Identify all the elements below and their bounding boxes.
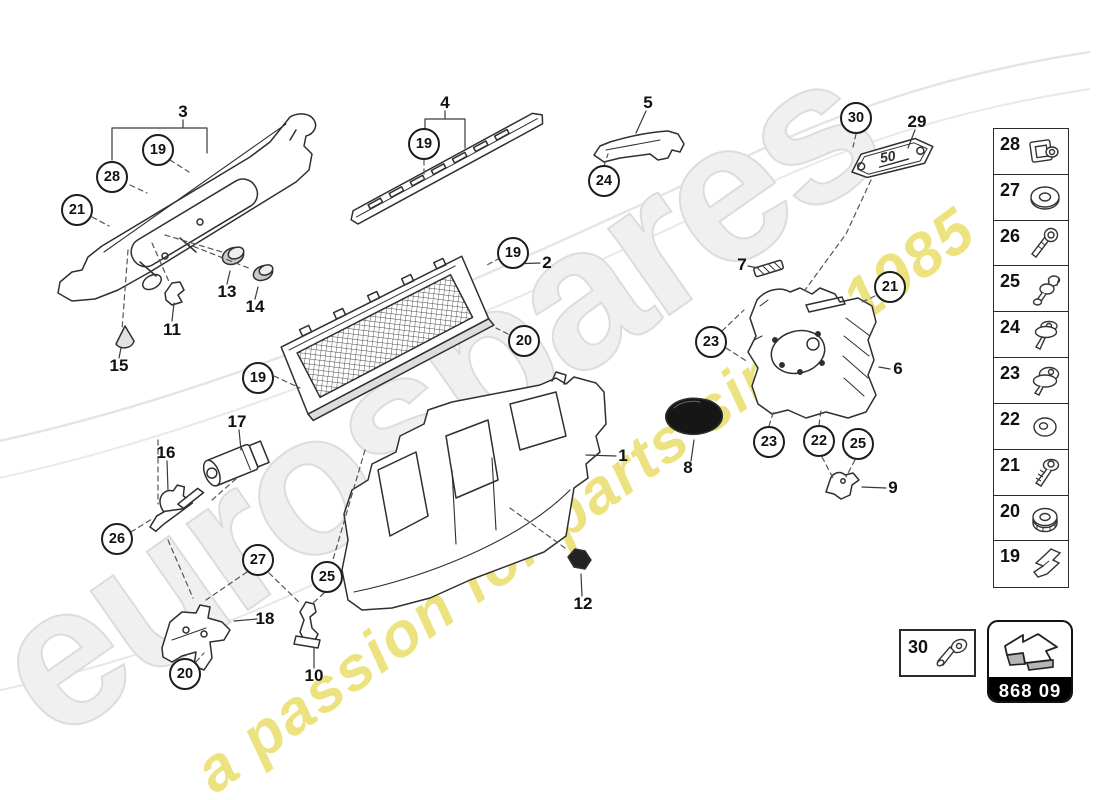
part-8-pad[interactable] [666, 398, 723, 434]
fasteners-legend: 28 27 26 [993, 128, 1069, 588]
label-1[interactable]: 1 [618, 446, 627, 466]
callout-22[interactable]: 22 [803, 425, 835, 457]
part-10-bracket[interactable] [294, 602, 320, 648]
legend-item-25[interactable]: 25 [993, 265, 1069, 313]
label-3[interactable]: 3 [178, 102, 187, 122]
callout-23[interactable]: 23 [695, 326, 727, 358]
push-rivet-icon [1023, 315, 1067, 355]
countersunk-screw-icon [926, 633, 974, 677]
label-18[interactable]: 18 [256, 609, 275, 629]
part-9-bracket[interactable] [826, 473, 859, 499]
legend-item-26[interactable]: 26 [993, 220, 1069, 268]
part-2-grille-panel[interactable] [273, 251, 499, 421]
label-14[interactable]: 14 [246, 297, 265, 317]
callout-21[interactable]: 21 [874, 271, 906, 303]
label-4[interactable]: 4 [440, 93, 449, 113]
callout-19[interactable]: 19 [408, 128, 440, 160]
label-13[interactable]: 13 [218, 282, 237, 302]
callout-24[interactable]: 24 [588, 165, 620, 197]
label-11[interactable]: 11 [163, 320, 181, 340]
label-6[interactable]: 6 [893, 359, 902, 379]
part-11-clip[interactable] [165, 282, 184, 305]
legend-item-28[interactable]: 28 [993, 128, 1069, 176]
callout-21[interactable]: 21 [61, 194, 93, 226]
callout-23[interactable]: 23 [753, 426, 785, 458]
inset-item-30[interactable]: 30 [899, 629, 976, 677]
legend-item-21[interactable]: 21 [993, 449, 1069, 497]
part-16-hook[interactable] [140, 478, 211, 533]
label-9[interactable]: 9 [888, 478, 897, 498]
label-8[interactable]: 8 [683, 458, 692, 478]
legend-item-24[interactable]: 24 [993, 311, 1069, 359]
part-29-badge-plate[interactable]: 50 [848, 136, 936, 180]
label-29[interactable]: 29 [908, 112, 927, 132]
ball-stud-icon [1023, 269, 1067, 309]
diagram-code-label: 868 09 [989, 677, 1071, 703]
callout-27[interactable]: 27 [242, 544, 274, 576]
diagram-code-badge[interactable]: 868 09 [987, 620, 1073, 703]
part-12-clip[interactable] [568, 549, 591, 569]
legend-item-23[interactable]: 23 [993, 357, 1069, 405]
part-1-bulkhead-panel[interactable] [342, 372, 606, 610]
label-10[interactable]: 10 [305, 666, 324, 686]
legend-item-19[interactable]: 19 [993, 540, 1069, 588]
part-3-sill-trim[interactable] [58, 114, 316, 301]
callout-28[interactable]: 28 [96, 161, 128, 193]
label-2[interactable]: 2 [542, 253, 551, 273]
part-6-quarter-panel[interactable] [748, 288, 876, 418]
label-12[interactable]: 12 [574, 594, 593, 614]
label-16[interactable]: 16 [157, 443, 176, 463]
washer-icon [1023, 407, 1067, 447]
label-5[interactable]: 5 [643, 93, 652, 113]
callout-20[interactable]: 20 [169, 658, 201, 690]
callout-25[interactable]: 25 [842, 428, 874, 460]
diagram-artwork: 50 [0, 0, 1100, 800]
callout-20[interactable]: 20 [508, 325, 540, 357]
callout-25[interactable]: 25 [311, 561, 343, 593]
callout-19[interactable]: 19 [142, 134, 174, 166]
part-4-sill-strip[interactable] [348, 110, 546, 226]
washer-screw-icon [1023, 361, 1067, 401]
parts-diagram-page: eurospares a passion for parts since 198… [0, 0, 1100, 800]
legend-item-22[interactable]: 22 [993, 403, 1069, 451]
flange-nut-icon [1023, 499, 1067, 539]
part-13-grommet[interactable] [220, 244, 246, 267]
callout-26[interactable]: 26 [101, 523, 133, 555]
legend-item-27[interactable]: 27 [993, 174, 1069, 222]
part-14-grommet[interactable] [251, 263, 275, 283]
callout-19[interactable]: 19 [242, 362, 274, 394]
large-washer-icon [1023, 178, 1067, 218]
label-7[interactable]: 7 [737, 255, 746, 275]
part-18-bracket[interactable] [162, 605, 230, 670]
captive-nut-clip-icon [1023, 132, 1067, 172]
part-15-clip[interactable] [116, 326, 134, 348]
coarse-thread-screw-icon [1023, 453, 1067, 493]
torx-bolt-icon [1023, 224, 1067, 264]
group-arrow-icon [989, 622, 1071, 677]
label-17[interactable]: 17 [228, 412, 247, 432]
callout-30[interactable]: 30 [840, 102, 872, 134]
spring-clip-icon [1023, 544, 1067, 584]
part-17-cylinder[interactable] [200, 439, 269, 488]
legend-item-20[interactable]: 20 [993, 495, 1069, 543]
label-15[interactable]: 15 [110, 356, 129, 376]
callout-19[interactable]: 19 [497, 237, 529, 269]
